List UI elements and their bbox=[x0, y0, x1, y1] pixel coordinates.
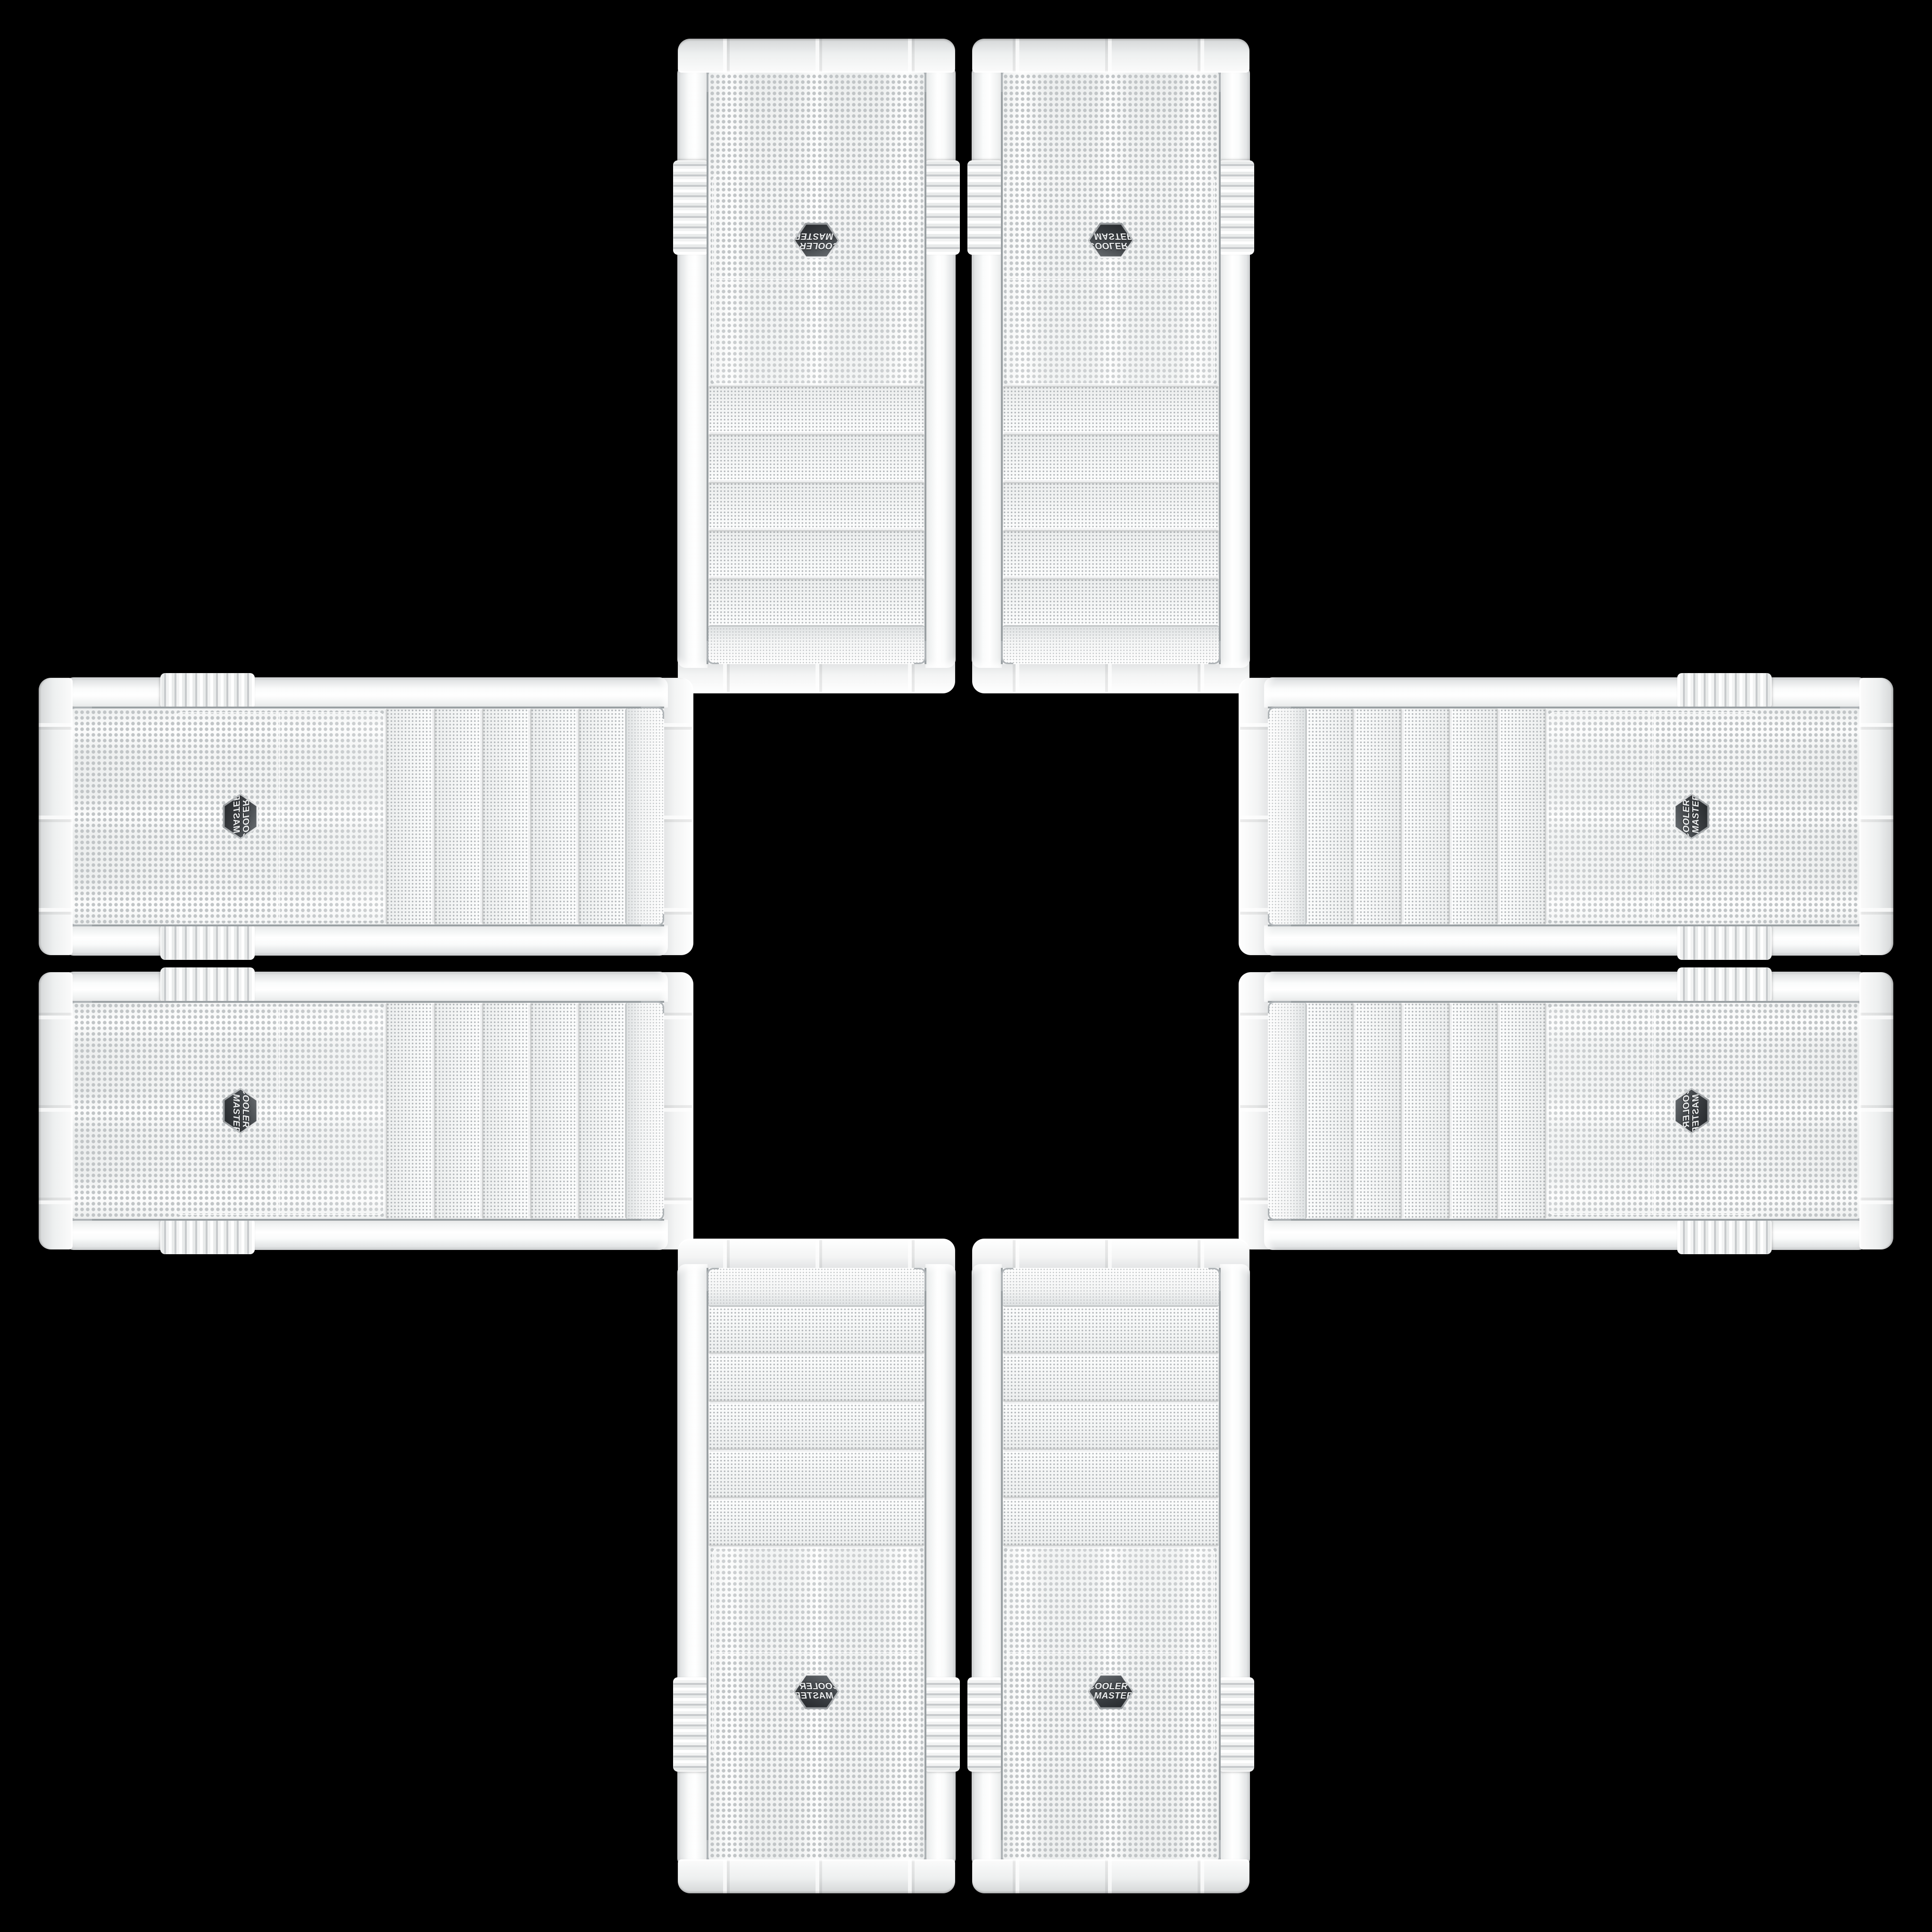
drive-bays bbox=[708, 384, 924, 625]
cooler-master-badge: COOLER MASTER bbox=[1673, 1088, 1710, 1134]
side-grip-ribs bbox=[673, 1677, 709, 1772]
case-right-column bbox=[65, 677, 668, 708]
mesh-corner-trim bbox=[1001, 641, 1013, 664]
cooler-master-badge: COOLER MASTER bbox=[222, 1088, 259, 1134]
pc-case-left-bottom: COOLER MASTER bbox=[39, 972, 693, 1250]
side-grip-ribs bbox=[1677, 924, 1772, 960]
mesh-corner-trim bbox=[914, 1268, 926, 1291]
case-right-column bbox=[1220, 65, 1250, 668]
top-intake-mesh bbox=[1268, 708, 1307, 924]
drive-bay-cover bbox=[1003, 1356, 1219, 1402]
pc-case-top-right: COOLER MASTER bbox=[972, 39, 1250, 693]
cooler-master-badge: COOLER MASTER bbox=[793, 222, 840, 259]
drive-bay-cover bbox=[1452, 708, 1498, 924]
drive-bay-cover bbox=[1452, 1003, 1498, 1219]
drive-bay-cover bbox=[708, 482, 924, 528]
cooler-master-badge: COOLER MASTER bbox=[1673, 793, 1710, 840]
case-bottom-cap bbox=[1859, 972, 1893, 1249]
side-grip-ribs bbox=[1677, 673, 1772, 709]
front-mesh-panel: COOLER MASTER bbox=[69, 1001, 664, 1221]
case-top-cap bbox=[678, 659, 955, 693]
mesh-corner-trim bbox=[641, 1208, 664, 1221]
drive-bay-cover bbox=[482, 1003, 528, 1219]
case-left-column bbox=[1264, 972, 1867, 1002]
drive-bay-cover bbox=[434, 708, 480, 924]
mesh-corner-trim bbox=[1208, 641, 1221, 664]
mesh-corner-trim bbox=[1268, 1001, 1291, 1013]
drive-bays bbox=[384, 708, 625, 924]
drive-bay-cover bbox=[1404, 708, 1450, 924]
mesh-corner-trim bbox=[1268, 1208, 1291, 1221]
case-left-column bbox=[925, 65, 956, 668]
side-grip-ribs bbox=[160, 1218, 255, 1254]
drive-bays bbox=[1003, 1307, 1219, 1548]
case-top-cap bbox=[972, 659, 1249, 693]
top-intake-mesh bbox=[625, 1003, 664, 1219]
side-grip-ribs bbox=[1677, 967, 1772, 1003]
fan-grid-lines bbox=[175, 1007, 384, 1215]
case-left-column bbox=[972, 1264, 1002, 1867]
cooler-master-badge: COOLER MASTER bbox=[793, 1673, 840, 1710]
case-bottom-cap bbox=[1859, 678, 1893, 955]
drive-bay-cover bbox=[708, 386, 924, 432]
drive-bay-cover bbox=[708, 1452, 924, 1498]
fan-grid-lines bbox=[1007, 175, 1215, 384]
case-right-column bbox=[1220, 1264, 1250, 1867]
pc-case-bottom-right: COOLER MASTER bbox=[972, 1239, 1250, 1893]
mesh-corner-trim bbox=[1268, 707, 1291, 719]
front-mesh-panel: COOLER MASTER bbox=[1268, 707, 1863, 926]
cooler-master-badge: COOLER MASTER bbox=[222, 793, 259, 840]
case-top-cap bbox=[659, 678, 693, 955]
drive-bay-cover bbox=[1003, 578, 1219, 625]
stage: COOLER MASTER bbox=[0, 0, 1932, 1932]
case-bottom-cap bbox=[39, 972, 73, 1249]
side-grip-ribs bbox=[160, 967, 255, 1003]
drive-bay-cover bbox=[708, 434, 924, 480]
case-left-column bbox=[65, 972, 668, 1002]
drive-bay-cover bbox=[1003, 1404, 1219, 1450]
case-left-column bbox=[1264, 925, 1867, 956]
case-left-column bbox=[972, 65, 1002, 668]
case-bottom-cap bbox=[39, 678, 73, 955]
drive-bay-cover bbox=[578, 708, 625, 924]
drive-bay-cover bbox=[1404, 1003, 1450, 1219]
mesh-corner-trim bbox=[641, 707, 664, 719]
drive-bays bbox=[1307, 1003, 1548, 1219]
side-grip-ribs bbox=[967, 160, 1003, 255]
drive-bay-cover bbox=[708, 530, 924, 576]
side-grip-ribs bbox=[924, 1677, 960, 1772]
side-grip-ribs bbox=[160, 924, 255, 960]
drive-bay-cover bbox=[708, 1500, 924, 1546]
drive-bay-cover bbox=[1003, 1500, 1219, 1546]
fan-grid-lines bbox=[712, 175, 921, 384]
drive-bay-cover bbox=[386, 1003, 432, 1219]
case-bottom-cap bbox=[972, 39, 1249, 73]
side-grip-ribs bbox=[1218, 1677, 1254, 1772]
drive-bay-cover bbox=[1500, 1003, 1546, 1219]
front-mesh-panel: COOLER MASTER bbox=[1001, 69, 1221, 664]
cooler-master-badge: COOLER MASTER bbox=[1088, 1673, 1134, 1710]
side-grip-ribs bbox=[1218, 160, 1254, 255]
mesh-corner-trim bbox=[707, 1268, 719, 1291]
drive-bay-cover bbox=[1003, 530, 1219, 576]
side-grip-ribs bbox=[673, 160, 709, 255]
drive-bay-cover bbox=[708, 1307, 924, 1354]
case-right-column bbox=[1264, 1220, 1867, 1250]
fan-grid-lines bbox=[1548, 712, 1757, 921]
drive-bay-cover bbox=[1003, 482, 1219, 528]
case-left-column bbox=[925, 1264, 956, 1867]
drive-bay-cover bbox=[708, 578, 924, 625]
drive-bay-cover bbox=[708, 1404, 924, 1450]
drive-bay-cover bbox=[708, 1356, 924, 1402]
top-intake-mesh bbox=[708, 625, 924, 664]
pc-case-left-top: COOLER MASTER bbox=[39, 677, 693, 956]
drive-bay-cover bbox=[1003, 1307, 1219, 1354]
case-bottom-cap bbox=[678, 1859, 955, 1893]
side-grip-ribs bbox=[924, 160, 960, 255]
fan-grid-lines bbox=[1548, 1007, 1757, 1215]
top-intake-mesh bbox=[625, 708, 664, 924]
mesh-corner-trim bbox=[707, 641, 719, 664]
drive-bay-cover bbox=[434, 1003, 480, 1219]
mesh-corner-trim bbox=[641, 1001, 664, 1013]
drive-bay-cover bbox=[1307, 708, 1354, 924]
case-top-cap bbox=[659, 972, 693, 1249]
front-mesh-panel: COOLER MASTER bbox=[1268, 1001, 1863, 1221]
drive-bays bbox=[1307, 708, 1548, 924]
pc-case-right-top: COOLER MASTER bbox=[1239, 677, 1893, 956]
drive-bay-cover bbox=[1500, 708, 1546, 924]
fan-grid-lines bbox=[1007, 1548, 1215, 1757]
drive-bay-cover bbox=[386, 708, 432, 924]
drive-bays bbox=[384, 1003, 625, 1219]
case-right-column bbox=[1264, 677, 1867, 708]
side-grip-ribs bbox=[1677, 1218, 1772, 1254]
case-right-column bbox=[677, 65, 708, 668]
front-mesh-panel: COOLER MASTER bbox=[707, 1268, 926, 1863]
top-intake-mesh bbox=[1268, 1003, 1307, 1219]
drive-bay-cover bbox=[482, 708, 528, 924]
front-mesh-panel: COOLER MASTER bbox=[707, 69, 926, 664]
side-grip-ribs bbox=[160, 673, 255, 709]
side-grip-ribs bbox=[967, 1677, 1003, 1772]
pc-case-top-left: COOLER MASTER bbox=[677, 39, 956, 693]
case-bottom-cap bbox=[678, 39, 955, 73]
drive-bay-cover bbox=[530, 1003, 576, 1219]
front-mesh-panel: COOLER MASTER bbox=[69, 707, 664, 926]
top-intake-mesh bbox=[708, 1268, 924, 1307]
case-right-column bbox=[677, 1264, 708, 1867]
pc-case-right-bottom: COOLER MASTER bbox=[1239, 972, 1893, 1250]
front-mesh-panel: COOLER MASTER bbox=[1001, 1268, 1221, 1863]
fan-grid-lines bbox=[712, 1548, 921, 1757]
drive-bay-cover bbox=[1356, 708, 1402, 924]
cooler-master-badge: COOLER MASTER bbox=[1088, 222, 1134, 259]
case-left-column bbox=[65, 925, 668, 956]
drive-bay-cover bbox=[1307, 1003, 1354, 1219]
mesh-corner-trim bbox=[1208, 1268, 1221, 1291]
drive-bay-cover bbox=[1003, 386, 1219, 432]
drive-bay-cover bbox=[578, 1003, 625, 1219]
mesh-corner-trim bbox=[1268, 914, 1291, 926]
drive-bay-cover bbox=[1356, 1003, 1402, 1219]
mesh-corner-trim bbox=[914, 641, 926, 664]
case-right-column bbox=[65, 1220, 668, 1250]
drive-bay-cover bbox=[530, 708, 576, 924]
pc-case-bottom-left: COOLER MASTER bbox=[677, 1239, 956, 1893]
top-intake-mesh bbox=[1003, 625, 1219, 664]
fan-grid-lines bbox=[175, 712, 384, 921]
mesh-corner-trim bbox=[1001, 1268, 1013, 1291]
drive-bay-cover bbox=[1003, 434, 1219, 480]
drive-bays bbox=[708, 1307, 924, 1548]
drive-bay-cover bbox=[1003, 1452, 1219, 1498]
mesh-corner-trim bbox=[641, 914, 664, 926]
drive-bays bbox=[1003, 384, 1219, 625]
top-intake-mesh bbox=[1003, 1268, 1219, 1307]
case-bottom-cap bbox=[972, 1859, 1249, 1893]
